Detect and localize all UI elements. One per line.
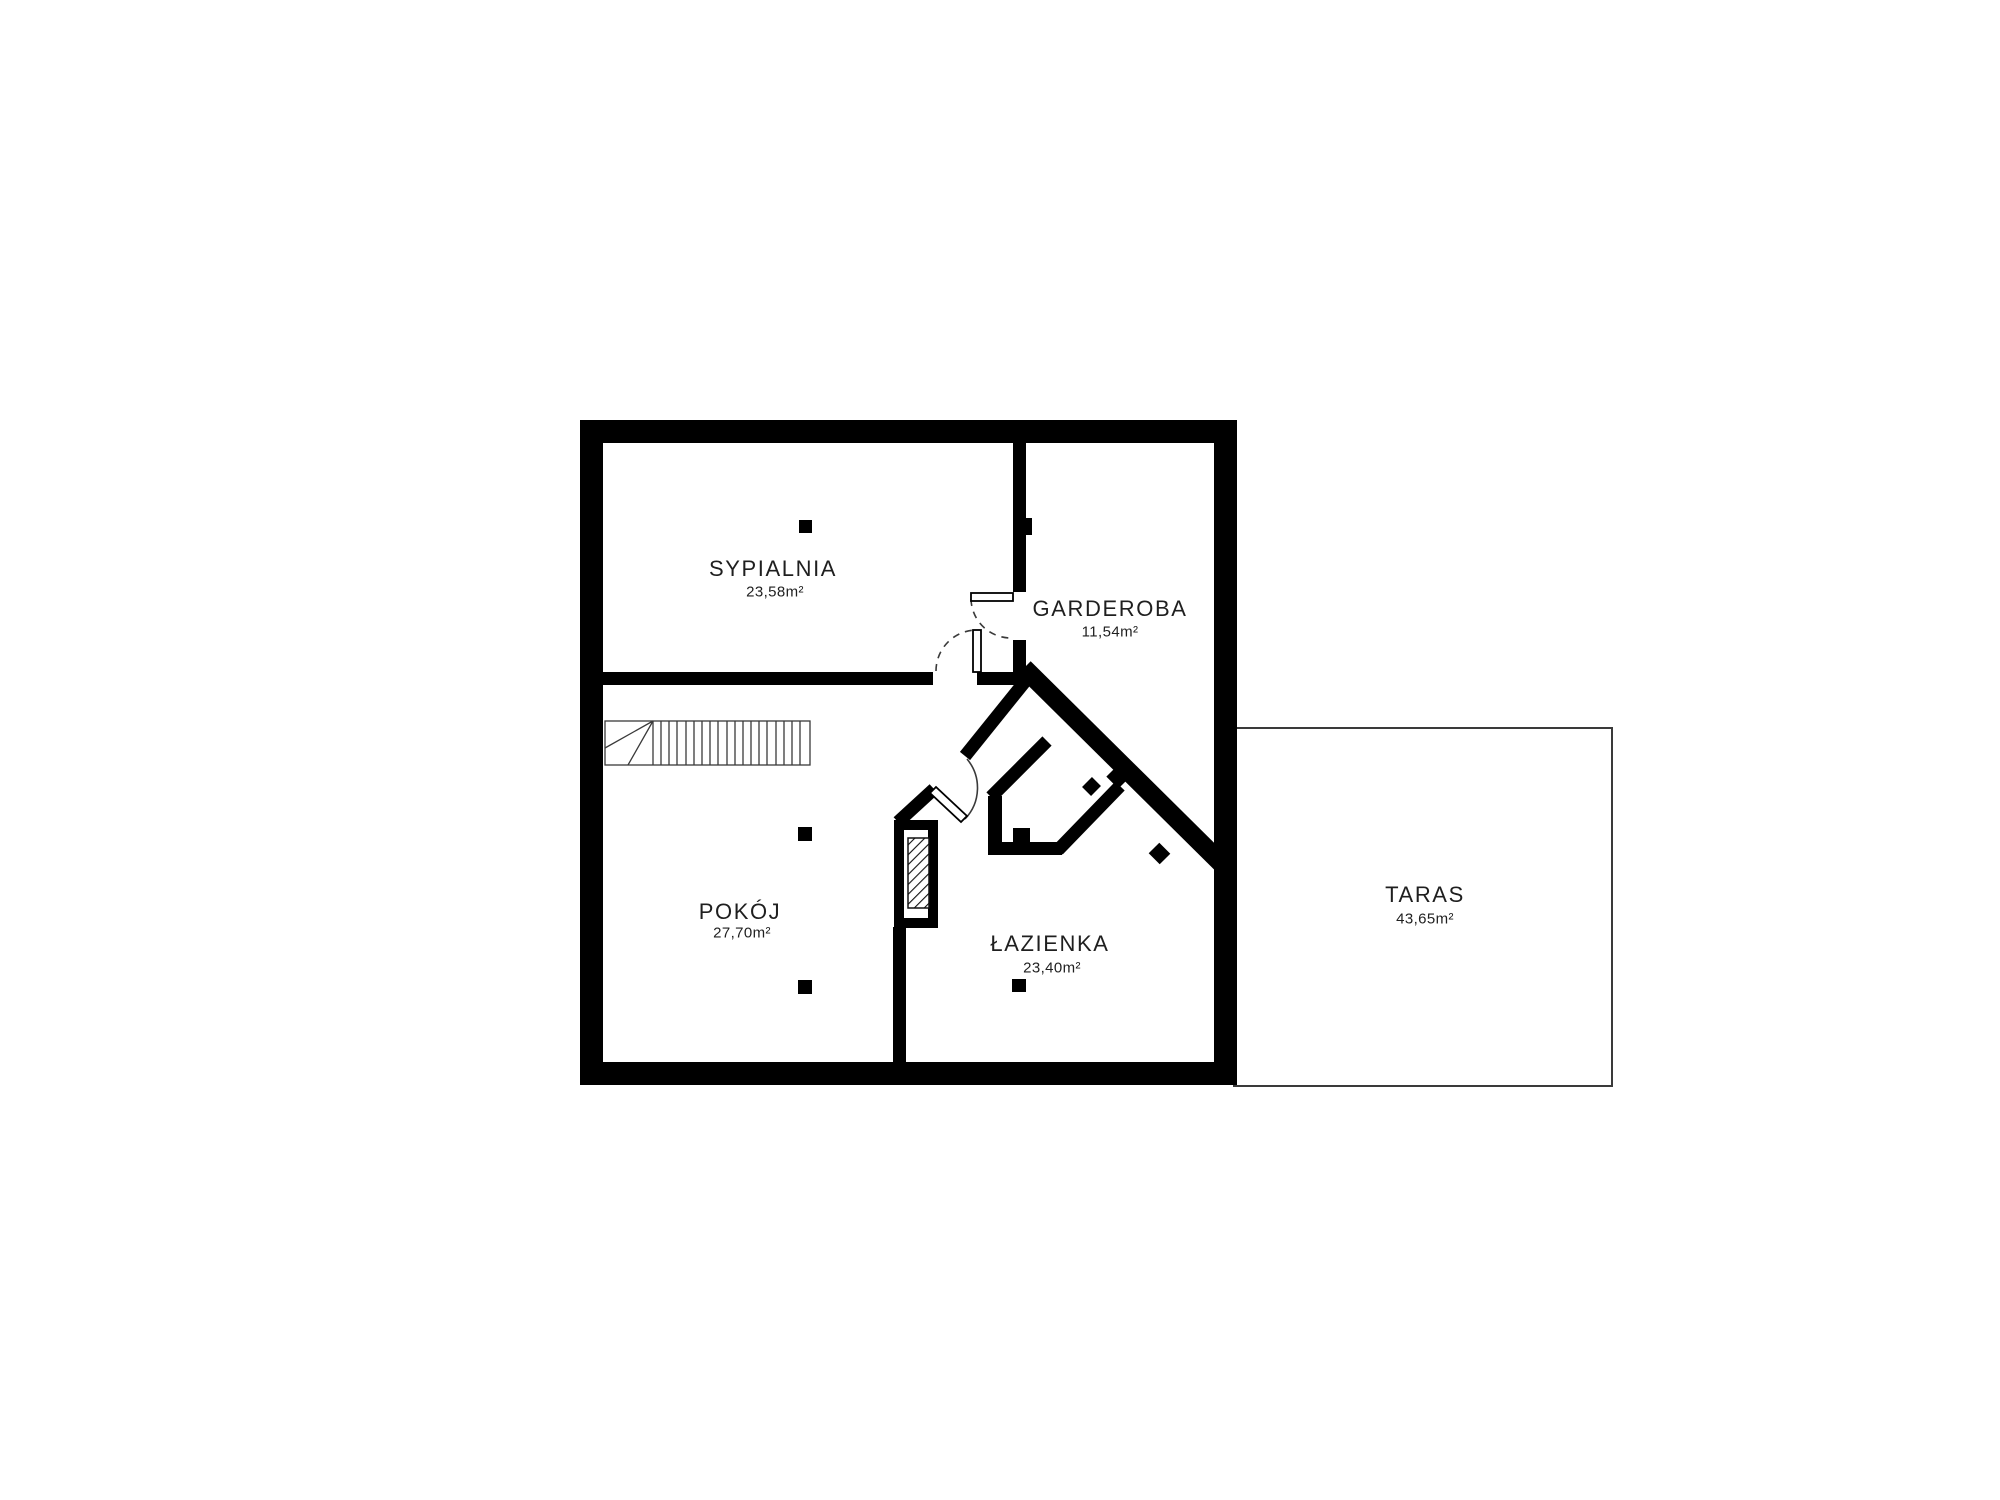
- marker-lazienka: [1012, 979, 1026, 992]
- cabin-walls: [988, 741, 1165, 859]
- wall-sypialnia-south-left: [603, 672, 933, 685]
- outer-walls: [580, 420, 1237, 1085]
- wall-diagonal-nw-lower: [898, 789, 934, 822]
- cabin-door-stop: [1013, 828, 1030, 843]
- door-leaf-cabin: [930, 787, 967, 822]
- cabin-wall-south: [988, 842, 1062, 855]
- wall-pokoj-lazienka: [893, 927, 906, 1062]
- wall-stub-diagonal-a: [1112, 771, 1124, 783]
- building-shell-wall: [580, 420, 1237, 1085]
- door-arc-cabin: [965, 759, 977, 819]
- door-leaf-sypialnia: [973, 630, 981, 672]
- stairs-winders: [605, 721, 653, 765]
- door-leaf-garderoba: [971, 593, 1013, 601]
- cabin-wall-se: [1058, 786, 1120, 850]
- wall-stub-diagonal-c: [1154, 848, 1165, 859]
- wall-sypialnia-garderoba-upper: [1013, 443, 1026, 592]
- shaft-hatch: [908, 838, 929, 908]
- marker-sypialnia: [799, 520, 812, 533]
- ventilation-shaft: [899, 825, 933, 923]
- door-arc-sypialnia: [936, 630, 977, 671]
- wall-stub-garderoba: [1025, 518, 1032, 535]
- wall-diagonal-nw-upper: [965, 679, 1027, 756]
- wall-stub-diagonal-b: [1087, 782, 1096, 791]
- floorplan-drawing: [0, 0, 2000, 1500]
- stairs-outline: [605, 721, 810, 765]
- terrace-outline: [1234, 728, 1612, 1086]
- diagonal-walls: [898, 668, 1222, 864]
- marker-pokoj-1: [798, 827, 812, 841]
- stairs-treads: [653, 721, 800, 765]
- wall-diagonal-long: [1024, 668, 1222, 864]
- cabin-wall-nw: [991, 741, 1047, 797]
- marker-pokoj-2: [798, 980, 812, 994]
- floorplan-page: SYPIALNIA 23,58m² GARDEROBA 11,54m² POKÓ…: [0, 0, 2000, 1500]
- stairs: [605, 721, 810, 765]
